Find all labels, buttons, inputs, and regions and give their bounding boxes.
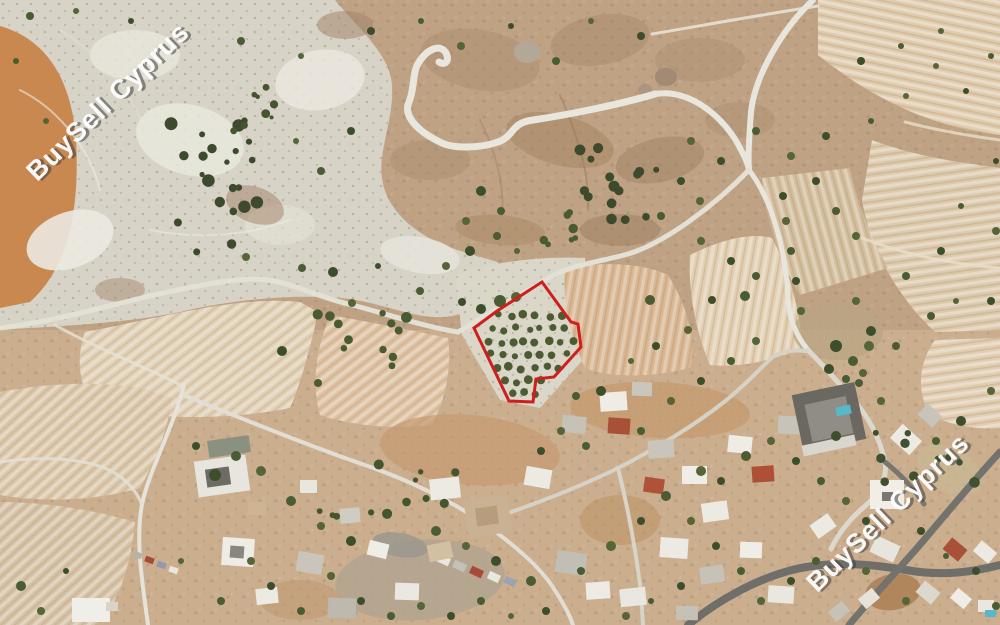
satellite-map: BuySell Cyprus BuySell Cyprus BuySell Cy… bbox=[0, 0, 1000, 625]
satellite-imagery: BuySell Cyprus BuySell Cyprus BuySell Cy… bbox=[0, 0, 1000, 625]
